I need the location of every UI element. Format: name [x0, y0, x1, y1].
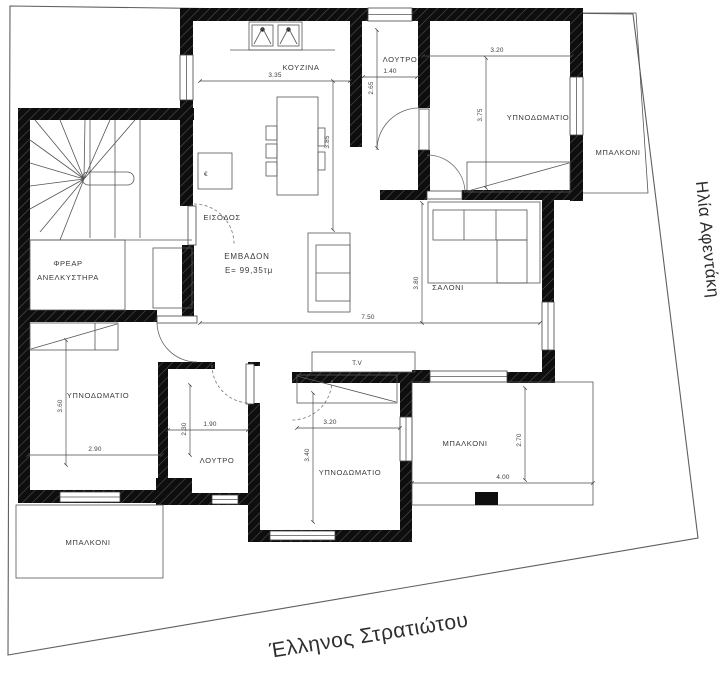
kitchen-fixtures: € — [198, 22, 335, 195]
room-label-bedroom-bc: ΥΠΝΟΔΩΜΑΤΙΟ — [319, 468, 382, 477]
dim-living-w: 7.50 — [361, 314, 374, 321]
windows — [60, 8, 583, 540]
street-label-right: Ηλία Αφεντάκη — [692, 180, 723, 299]
dim-bath-top-w: 1.40 — [383, 68, 396, 75]
entrance-door-arc — [194, 204, 234, 244]
balcony-br-outline — [412, 382, 593, 505]
dim-bedroom-bc-w: 3.20 — [323, 419, 336, 426]
bath-top-door-leaf — [419, 109, 429, 150]
dim-bedroom-bl-w: 2.90 — [88, 446, 101, 453]
room-label-bedroom-tr: ΥΠΝΟΔΩΜΑΤΙΟ — [507, 113, 570, 122]
sofa-corner — [428, 202, 540, 283]
bath-bottom-door-leaf — [246, 364, 254, 404]
dim-kitchen-w: 3.35 — [268, 72, 281, 79]
bath-bottom-door-arc — [212, 365, 250, 403]
appliance-mark: € — [204, 171, 208, 178]
area-value: E= 99,35τμ — [225, 266, 273, 275]
room-label-elevator-1: ΦΡΕΑΡ — [53, 259, 82, 268]
room-label-kitchen: ΚΟΥΖΙΝΑ — [282, 63, 319, 72]
entrance-door-leaf — [188, 206, 196, 245]
bedroom-bc-door-arc — [292, 380, 332, 420]
floor-plan: € — [0, 0, 723, 675]
bedroom-bl-door-arc — [157, 322, 197, 362]
tv-unit — [312, 352, 415, 372]
street-label-bottom: Έλληνος Στρατιώτου — [267, 609, 470, 663]
bedroom-tr-door-leaf — [427, 191, 462, 199]
dim-bath-bottom-w: 1.90 — [203, 421, 216, 428]
dim-bath-bottom-h: 2.30 — [181, 422, 188, 435]
dim-living-h: 3.80 — [413, 276, 420, 289]
kitchen-island — [277, 97, 318, 195]
dim-kitchen-h: 3.85 — [324, 135, 331, 148]
bedroom-bl-door-leaf — [157, 316, 197, 323]
room-label-balcony-br: ΜΠΑΛΚΟΝΙ — [442, 439, 487, 448]
dim-bedroom-bc-h: 3.40 — [304, 448, 311, 461]
bedroom-tr-door-arc — [427, 155, 465, 193]
dim-balcony-br-h: 2.70 — [516, 433, 523, 446]
room-label-living: ΣΑΛΟΝΙ — [432, 283, 464, 292]
room-label-balcony-bl: ΜΠΑΛΚΟΝΙ — [65, 538, 110, 547]
dim-bath-top-h: 2.65 — [368, 81, 375, 94]
dimension-lines — [28, 30, 593, 522]
walls — [18, 8, 583, 542]
room-label-entrance: ΕΙΣΟΔΟΣ — [203, 213, 240, 222]
area-label: ΕΜΒΑΔΟΝ — [224, 252, 269, 261]
room-label-balcony-tr: ΜΠΑΛΚΟΝΙ — [595, 148, 640, 157]
room-label-bedroom-bl: ΥΠΝΟΔΩΜΑΤΙΟ — [67, 391, 130, 400]
dim-balcony-br-w: 4.00 — [496, 474, 509, 481]
room-label-bath-bottom: ΛΟΥΤΡΟ — [200, 456, 235, 465]
balcony-tr-outline — [583, 13, 648, 193]
dim-bedroom-tr-w: 3.20 — [490, 47, 503, 54]
room-label-elevator-2: ΑΝΕΛΚΥΣΤΗΡΑ — [37, 273, 99, 282]
room-label-tv: T.V — [352, 360, 362, 367]
floor-plan-svg: € — [0, 0, 723, 675]
balcony-column — [475, 492, 498, 505]
bath-top-door-arc — [377, 108, 419, 150]
dim-bedroom-tr-h: 3.75 — [477, 108, 484, 121]
dim-bedroom-bl-h: 3.60 — [57, 399, 64, 412]
room-label-bath-top: ΛΟΥΤΡΟ — [383, 55, 418, 64]
